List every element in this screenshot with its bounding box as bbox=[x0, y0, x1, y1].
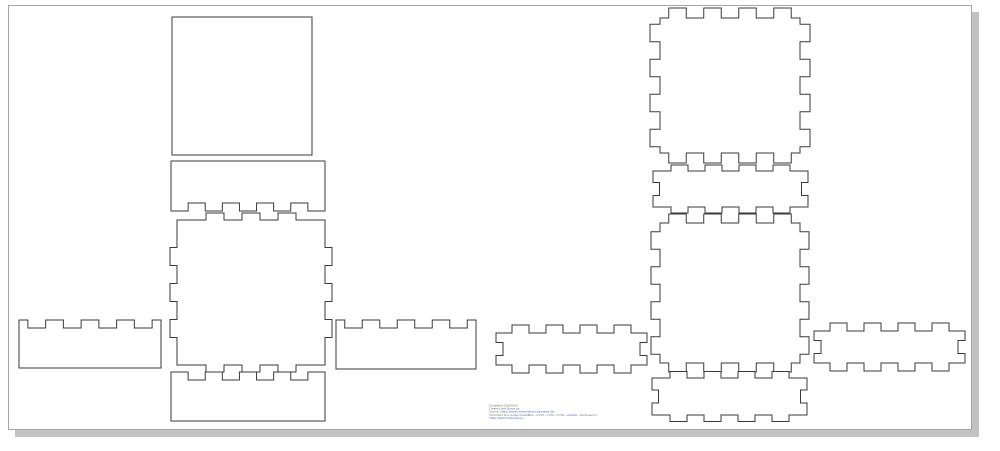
footer-note: ClosedBox 50x50x50Created with Boxes.pyS… bbox=[489, 404, 652, 420]
footer-line: https://festi.info/boxes.py bbox=[489, 417, 652, 420]
footer-link[interactable]: --outside bbox=[565, 413, 577, 416]
box2-front-wall bbox=[652, 372, 807, 422]
viewer-canvas: ClosedBox 50x50x50Created with Boxes.pyS… bbox=[0, 0, 1000, 451]
box1-base bbox=[170, 213, 332, 372]
box2-left-wall bbox=[496, 325, 647, 373]
footer-text: --thickness=3 bbox=[577, 413, 597, 416]
box1-lid bbox=[172, 17, 312, 155]
box2-back-wall bbox=[653, 165, 808, 213]
footer-link[interactable]: https://festi.info/boxes.py bbox=[489, 417, 524, 420]
box1-right-wall bbox=[336, 320, 476, 369]
box2-base bbox=[651, 214, 809, 372]
box2-right-wall bbox=[814, 323, 965, 371]
cut-layout-sheet bbox=[0, 0, 1000, 451]
box1-front-wall bbox=[171, 372, 325, 421]
box1-left-wall bbox=[19, 320, 161, 368]
box1-back-wall bbox=[171, 161, 325, 211]
box2-top bbox=[650, 8, 810, 163]
